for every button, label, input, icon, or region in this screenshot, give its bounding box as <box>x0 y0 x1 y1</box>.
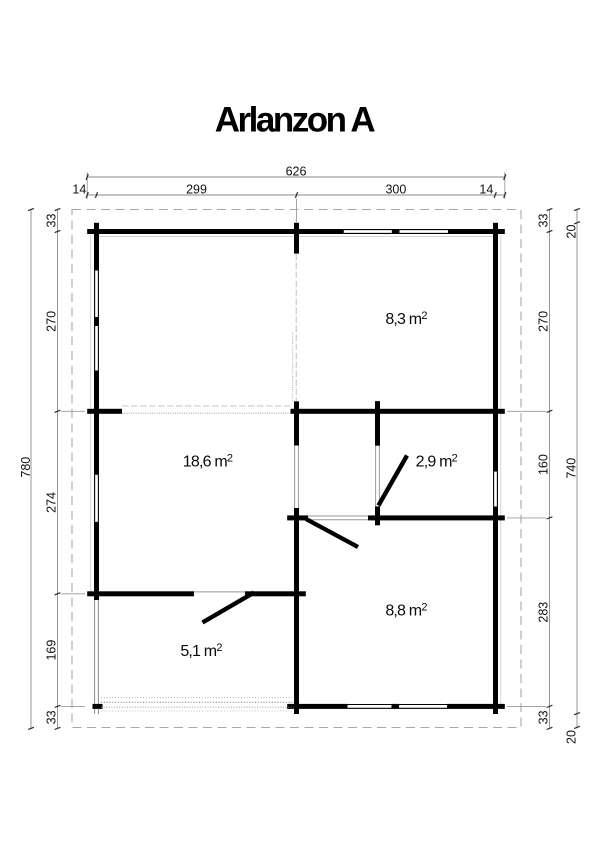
svg-text:300: 300 <box>385 183 406 197</box>
svg-text:14: 14 <box>479 183 493 197</box>
svg-text:780: 780 <box>19 457 33 478</box>
svg-text:169: 169 <box>45 640 59 661</box>
svg-text:270: 270 <box>45 311 59 332</box>
svg-text:Arlanzon A: Arlanzon A <box>215 101 376 140</box>
svg-text:2,9 m2: 2,9 m2 <box>416 453 458 471</box>
svg-text:14: 14 <box>72 183 86 197</box>
svg-text:33: 33 <box>537 214 551 228</box>
svg-text:33: 33 <box>537 710 551 724</box>
svg-text:270: 270 <box>537 311 551 332</box>
svg-text:20: 20 <box>565 730 579 744</box>
svg-text:626: 626 <box>286 164 307 178</box>
svg-text:8,8 m2: 8,8 m2 <box>385 602 427 620</box>
svg-text:8,3 m2: 8,3 m2 <box>385 310 427 328</box>
svg-text:5,1 m2: 5,1 m2 <box>180 642 222 660</box>
svg-text:33: 33 <box>45 710 59 724</box>
svg-text:33: 33 <box>45 214 59 228</box>
svg-text:20: 20 <box>565 225 579 239</box>
svg-text:274: 274 <box>45 492 59 513</box>
svg-text:740: 740 <box>565 458 579 479</box>
svg-text:160: 160 <box>537 454 551 475</box>
svg-text:299: 299 <box>186 183 207 197</box>
svg-text:283: 283 <box>537 602 551 623</box>
svg-text:18,6 m2: 18,6 m2 <box>183 453 233 471</box>
